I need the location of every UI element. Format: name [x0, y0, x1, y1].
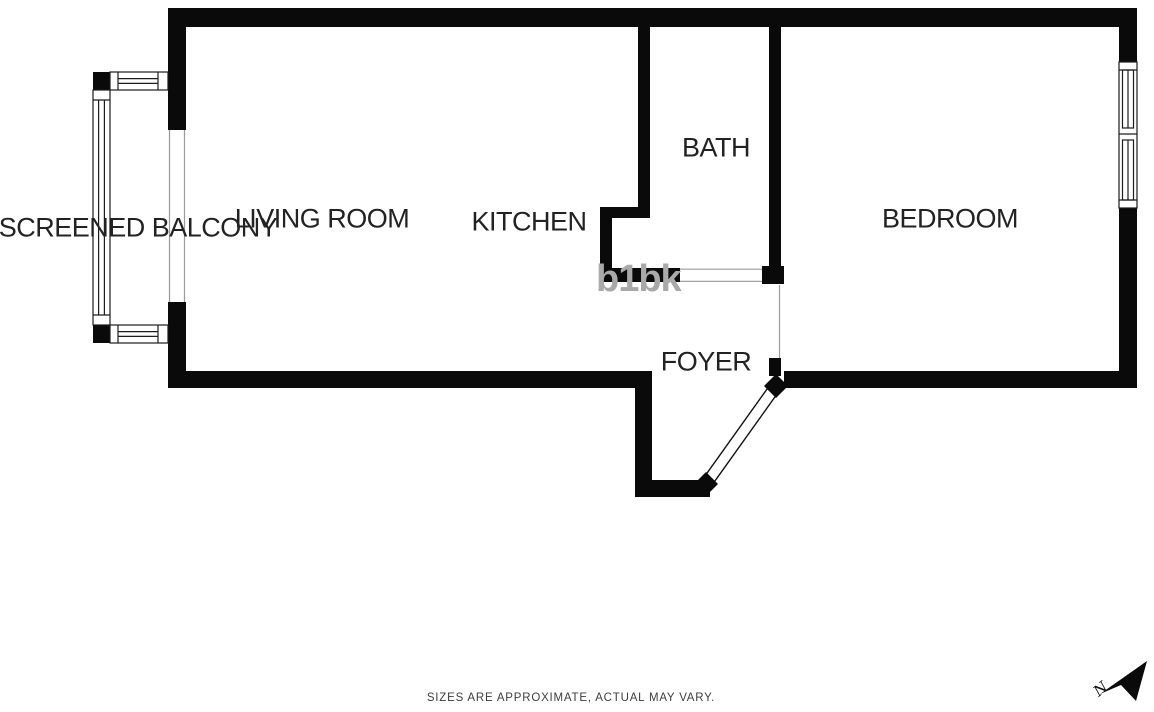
- room-label-foyer: FOYER: [661, 347, 752, 378]
- room-label-bath: BATH: [682, 133, 750, 164]
- balcony-window-left: [93, 90, 110, 325]
- wall-bedroom-left: [769, 27, 781, 267]
- wall-entry-alcove-left: [635, 371, 652, 497]
- bedroom-window: [1119, 62, 1137, 208]
- floorplan-drawing: [0, 0, 1154, 712]
- floorplan-canvas: SCREENED BALCONY LIVING ROOM KITCHEN BAT…: [0, 0, 1154, 712]
- wall-bottom-right: [784, 371, 1137, 388]
- wall-bedroom-left-stub: [769, 358, 781, 376]
- wall-right-upper: [1119, 8, 1137, 62]
- room-label-bedroom: BEDROOM: [882, 204, 1018, 235]
- entry-door-leaf: [702, 383, 781, 487]
- balcony-window-bottom: [110, 325, 168, 343]
- balcony-post-bottom: [93, 325, 110, 343]
- balcony-window-top: [110, 72, 168, 90]
- room-label-kitchen: KITCHEN: [471, 207, 586, 238]
- room-label-living-room: LIVING ROOM: [235, 204, 410, 235]
- disclaimer-text: SIZES ARE APPROXIMATE, ACTUAL MAY VARY.: [427, 692, 715, 704]
- wall-bath-left: [638, 27, 650, 218]
- bath-door-jamb-block: [762, 266, 784, 284]
- watermark: b1bk: [596, 259, 682, 301]
- wall-right-lower: [1119, 208, 1137, 388]
- wall-left-upper: [168, 8, 186, 130]
- wall-top: [168, 8, 1137, 27]
- balcony-post-top: [93, 72, 110, 90]
- wall-bottom-left: [168, 371, 652, 388]
